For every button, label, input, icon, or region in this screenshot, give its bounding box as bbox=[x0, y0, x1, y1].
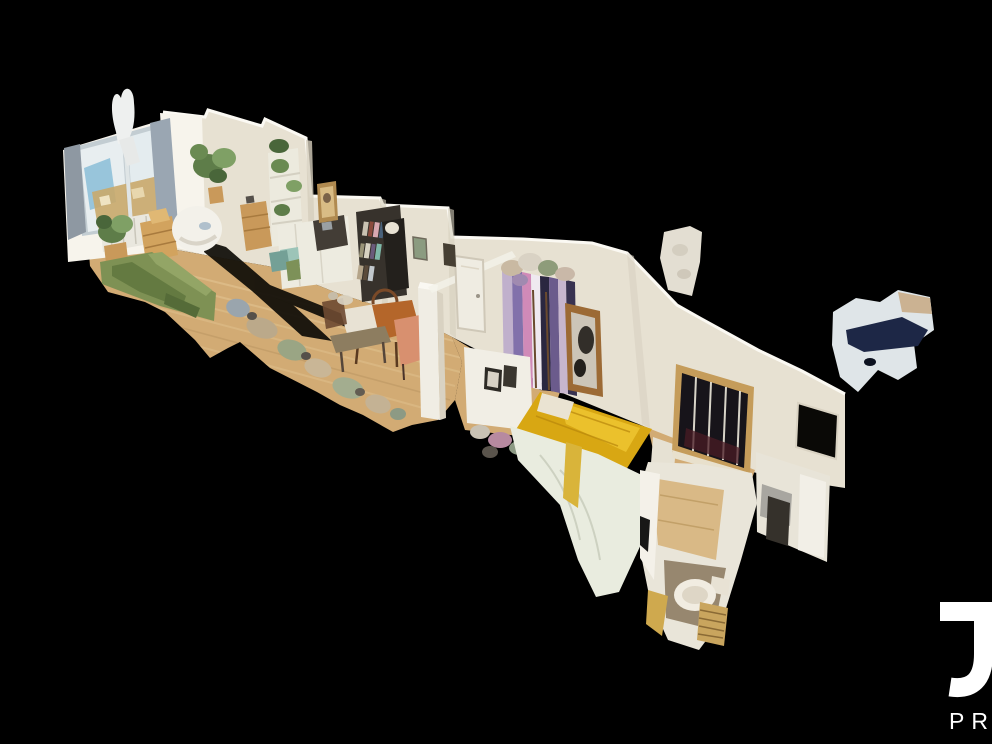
viewer-canvas[interactable]: J PR bbox=[0, 0, 992, 744]
picture-frame bbox=[443, 243, 456, 267]
green-basket bbox=[286, 259, 301, 281]
dollhouse-model[interactable] bbox=[0, 0, 992, 744]
door bbox=[455, 256, 485, 332]
logo-letter-j bbox=[938, 600, 992, 704]
bookshelf bbox=[356, 205, 409, 302]
mirror bbox=[565, 303, 603, 397]
logo-subtext: PR bbox=[949, 708, 992, 735]
small-wall-art bbox=[413, 237, 427, 260]
armchair bbox=[172, 206, 222, 252]
wall-art bbox=[317, 181, 338, 223]
towel-rack bbox=[697, 602, 728, 646]
watermark-logo: J PR bbox=[938, 600, 992, 744]
